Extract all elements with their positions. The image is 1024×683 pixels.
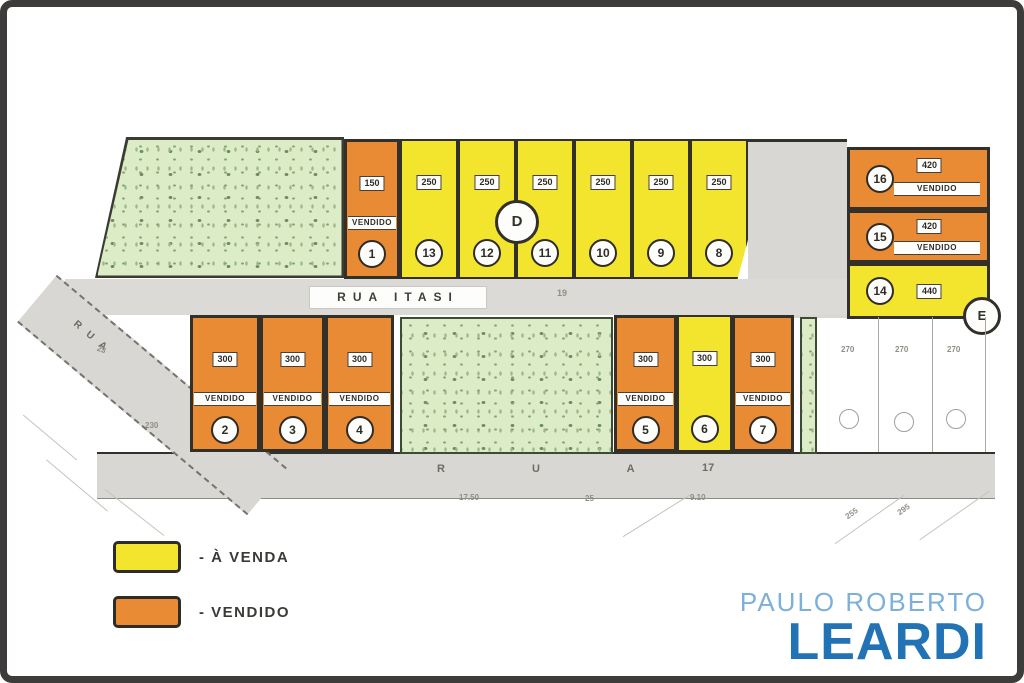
legend-label-vendido: - VENDIDO [199, 604, 290, 621]
dimension-mark: 25 [585, 494, 594, 503]
legend-swatch-a-venda [113, 541, 181, 573]
faint-lot-circle [839, 409, 859, 429]
lot-3: 300 VENDIDO 3 [260, 315, 325, 452]
lot-number-badge: 8 [705, 239, 733, 267]
lot-area-label: 300 [212, 352, 237, 367]
lot-13: 250 13 [400, 139, 458, 279]
lot-number-badge: 2 [211, 416, 239, 444]
street-number-17: 17 [702, 462, 714, 474]
green-strip-right [800, 317, 817, 454]
lot-number-badge: 10 [589, 239, 617, 267]
lot-area-label: 300 [633, 352, 658, 367]
lot-number-badge: 15 [866, 223, 894, 251]
plat-map-screenshot: 150 VENDIDO 1 250 13 250 12 250 11 250 1… [0, 0, 1024, 683]
lot-area-label: 250 [532, 175, 557, 190]
faint-boundary-line [623, 494, 691, 537]
dimension-mark: 17.50 [459, 493, 479, 502]
lot-16: 16 420 VENDIDO [847, 147, 990, 210]
lot-number-badge: 5 [632, 416, 660, 444]
lot-number-badge: 12 [473, 239, 501, 267]
lot-area-label: 250 [590, 175, 615, 190]
lot-status-band: VENDIDO [894, 241, 980, 255]
lot-area-label: 300 [347, 352, 372, 367]
faint-boundary-line [834, 495, 904, 545]
brand-logo-line2: LEARDI [787, 616, 987, 668]
lot-6: 300 6 [677, 315, 732, 452]
dimension-mark: 295 [896, 502, 912, 517]
lot-number-badge: 7 [749, 416, 777, 444]
dimension-mark: 230 [145, 421, 158, 430]
street-name-rua-itasi: RUA ITASI [309, 286, 487, 309]
legend: - À VENDA - VENDIDO [113, 541, 290, 651]
green-area-middle [400, 317, 613, 454]
lot-status-band: VENDIDO [348, 216, 396, 230]
lot-5: 300 VENDIDO 5 [614, 315, 677, 452]
faint-lot-strip: 270 270 270 [825, 317, 985, 452]
map-image-frame: 150 VENDIDO 1 250 13 250 12 250 11 250 1… [0, 0, 1024, 683]
lot-number-badge: 3 [279, 416, 307, 444]
lot-8: 250 8 [690, 139, 748, 279]
legend-swatch-vendido [113, 596, 181, 628]
lot-1: 150 VENDIDO 1 [344, 139, 400, 279]
street-number-19: 19 [557, 288, 567, 298]
faint-lot: 270 [932, 317, 986, 452]
faint-lot: 270 [825, 317, 879, 452]
green-area-top-left [95, 137, 344, 278]
lot-number-badge: 14 [866, 277, 894, 305]
lot-2: 300 VENDIDO 2 [190, 315, 260, 452]
faint-lot-area: 270 [895, 345, 908, 354]
lot-area-label: 250 [416, 175, 441, 190]
lot-status-band: VENDIDO [329, 392, 390, 406]
legend-item-vendido: - VENDIDO [113, 596, 290, 628]
lot-area-label: 150 [359, 176, 384, 191]
faint-lot-area: 270 [947, 345, 960, 354]
lot-10: 250 10 [574, 139, 632, 279]
lot-7: 300 VENDIDO 7 [732, 315, 794, 452]
lot-area-label: 440 [917, 284, 942, 299]
lot-number-badge: 6 [691, 415, 719, 443]
lot-area-label: 300 [692, 351, 717, 366]
lot-area-label: 300 [750, 352, 775, 367]
lot-status-band: VENDIDO [264, 392, 321, 406]
lot-area-label: 420 [917, 219, 942, 234]
lot-4: 300 VENDIDO 4 [325, 315, 394, 452]
street-name-rua-bottom: R U A [437, 463, 677, 475]
lot-area-label: 420 [917, 158, 942, 173]
dimension-mark: 9.10 [690, 493, 706, 502]
lot-15: 15 420 VENDIDO [847, 210, 990, 263]
lot-area-label: 250 [706, 175, 731, 190]
dimension-mark: 255 [844, 506, 860, 521]
faint-lot-area: 270 [841, 345, 854, 354]
lot-area-label: 250 [648, 175, 673, 190]
faint-lot: 270 [878, 317, 933, 452]
faint-boundary-line [23, 415, 77, 461]
brand-logo: PAULO ROBERTO LEARDI [740, 589, 987, 668]
lot-status-band: VENDIDO [194, 392, 256, 406]
lot-number-badge: 4 [346, 416, 374, 444]
lot-number-badge: 9 [647, 239, 675, 267]
lot-number-badge: 1 [358, 240, 386, 268]
lot-status-band: VENDIDO [736, 392, 790, 406]
lot-area-label: 300 [280, 352, 305, 367]
lot-9: 250 9 [632, 139, 690, 279]
lot-area-label: 250 [474, 175, 499, 190]
legend-item-a-venda: - À VENDA [113, 541, 290, 573]
lot-number-badge: 13 [415, 239, 443, 267]
faint-lot-circle [946, 409, 966, 429]
brand-logo-line1: PAULO ROBERTO [740, 589, 987, 616]
lot-status-band: VENDIDO [618, 392, 673, 406]
lot-number-badge: 11 [531, 239, 559, 267]
legend-label-a-venda: - À VENDA [199, 549, 289, 566]
lot-number-badge: 16 [866, 165, 894, 193]
lot-status-band: VENDIDO [894, 182, 980, 196]
boundary-marker-d: D [495, 200, 539, 244]
faint-lot-circle [894, 412, 914, 432]
